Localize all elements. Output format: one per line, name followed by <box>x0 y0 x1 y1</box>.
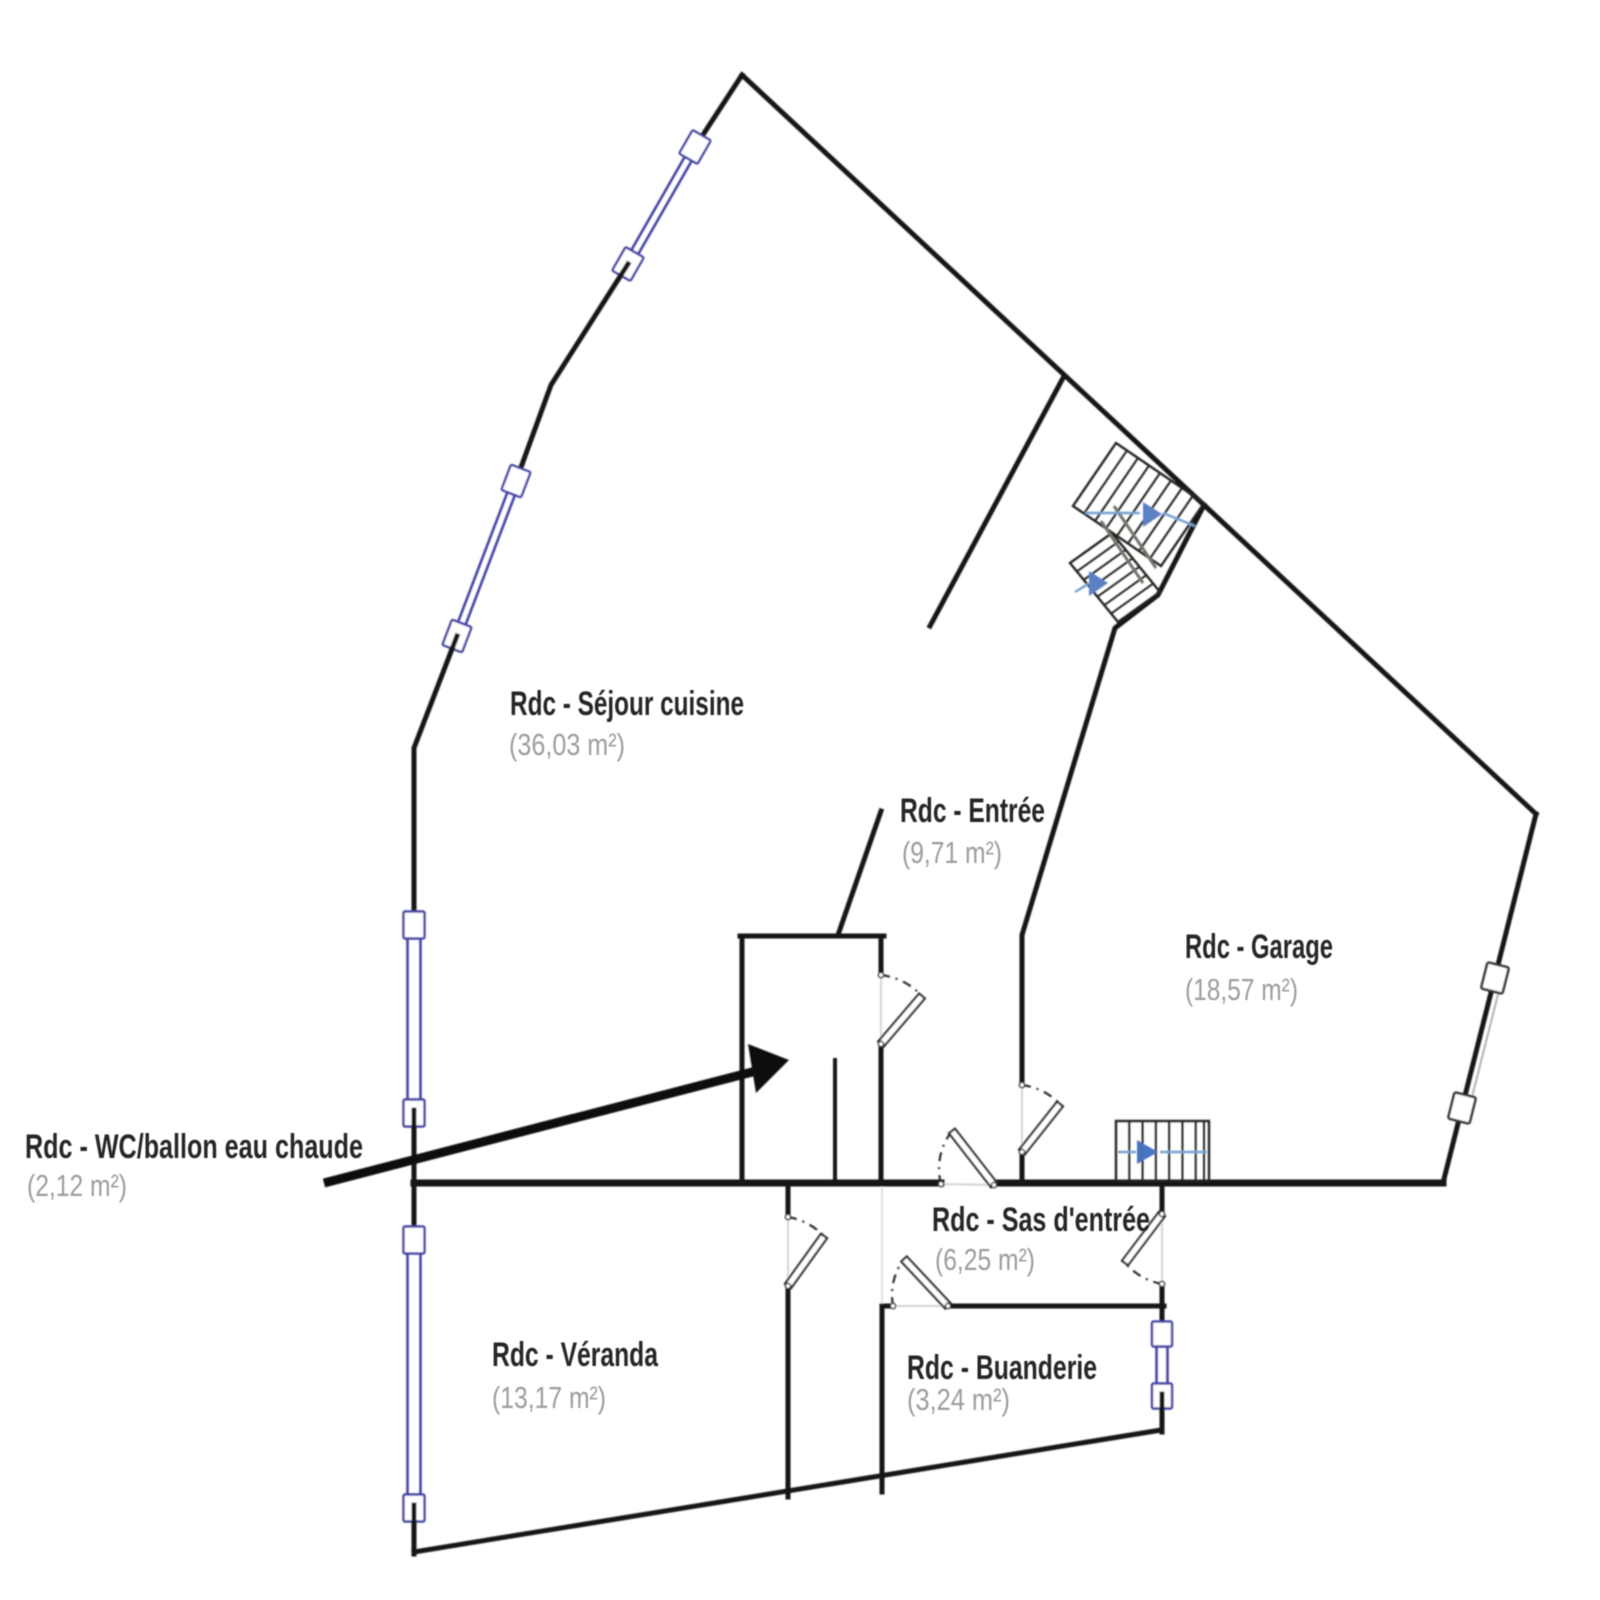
svg-text:(2,12 m²): (2,12 m²) <box>27 1168 127 1203</box>
svg-text:Rdc - Sas d'entrée: Rdc - Sas d'entrée <box>932 1201 1150 1239</box>
svg-text:Rdc - Garage: Rdc - Garage <box>1185 928 1333 966</box>
svg-text:(9,71 m²): (9,71 m²) <box>902 835 1002 870</box>
svg-text:(6,25 m²): (6,25 m²) <box>935 1242 1035 1277</box>
svg-text:(36,03 m²): (36,03 m²) <box>509 727 625 762</box>
svg-text:Rdc - Véranda: Rdc - Véranda <box>492 1336 659 1374</box>
svg-text:(18,57 m²): (18,57 m²) <box>1185 972 1298 1007</box>
svg-text:(3,24 m²): (3,24 m²) <box>907 1382 1010 1417</box>
svg-text:Rdc - Séjour cuisine: Rdc - Séjour cuisine <box>510 685 744 723</box>
svg-text:Rdc - WC/ballon eau chaude: Rdc - WC/ballon eau chaude <box>25 1128 363 1166</box>
svg-text:(13,17 m²): (13,17 m²) <box>492 1380 606 1415</box>
svg-text:Rdc - Entrée: Rdc - Entrée <box>900 792 1045 830</box>
